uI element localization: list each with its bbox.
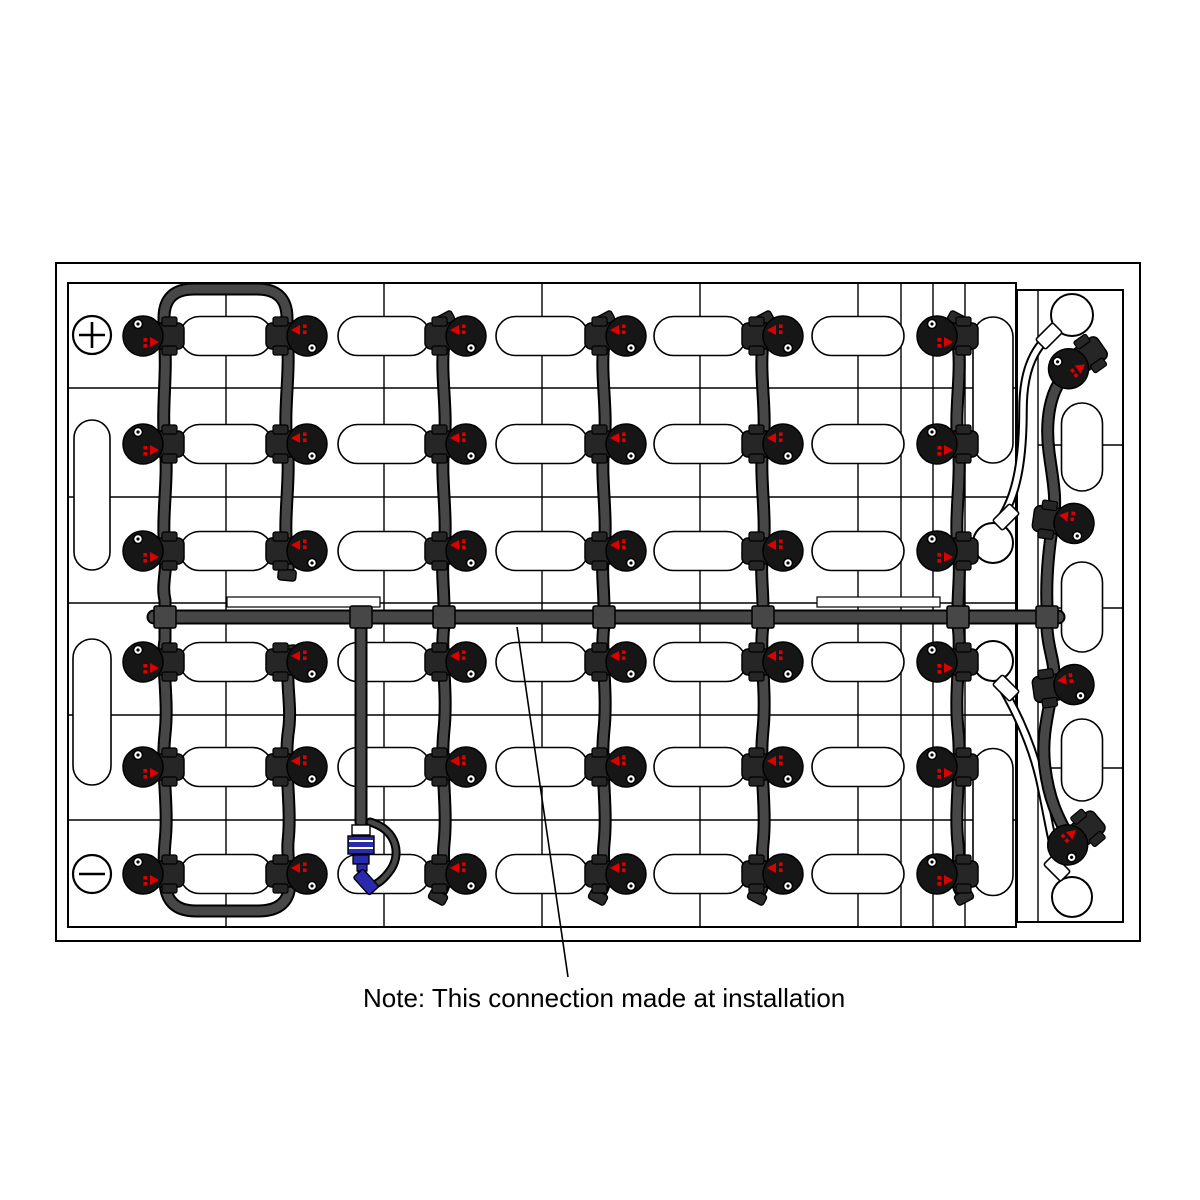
valve-flow-mark xyxy=(937,338,941,342)
valve-flow-mark xyxy=(143,882,147,886)
valve-flow-mark xyxy=(462,862,466,866)
valve-clip xyxy=(956,748,971,757)
watering-valve xyxy=(123,854,184,894)
valve-clip xyxy=(273,884,288,893)
valve-flow-mark xyxy=(937,882,941,886)
watering-valve xyxy=(425,854,486,894)
valve-indicator-pin xyxy=(136,648,139,651)
valve-clip xyxy=(432,454,447,463)
cell-oval xyxy=(654,425,746,464)
valve-flow-mark xyxy=(303,432,307,436)
valve-clip xyxy=(162,672,177,681)
watering-valve xyxy=(266,642,327,682)
valve-body xyxy=(763,424,803,464)
valve-body xyxy=(446,854,486,894)
valve-body xyxy=(606,747,646,787)
watering-valve xyxy=(266,854,327,894)
valve-clip xyxy=(592,425,607,434)
valve-clip xyxy=(592,561,607,570)
valve-indicator-pin xyxy=(310,672,313,675)
cell-oval xyxy=(812,855,904,894)
watering-valve xyxy=(425,531,486,571)
valve-flow-mark xyxy=(462,545,466,549)
watering-valve xyxy=(123,642,184,682)
valve-indicator-pin xyxy=(469,777,472,780)
vent-circle xyxy=(973,523,1013,563)
valve-flow-mark xyxy=(779,545,783,549)
valve-clip xyxy=(592,884,607,893)
watering-valve xyxy=(266,316,327,356)
valve-clip xyxy=(1038,668,1054,679)
valve-clip xyxy=(1038,529,1054,540)
cell-oval-vertical xyxy=(1062,562,1103,652)
tube-tee xyxy=(1036,606,1058,628)
cell-oval-vertical xyxy=(1062,403,1103,491)
valve-body xyxy=(763,316,803,356)
valve-clip xyxy=(432,425,447,434)
valve-body xyxy=(446,531,486,571)
valve-clip xyxy=(432,672,447,681)
valve-flow-mark xyxy=(303,539,307,543)
valve-body xyxy=(917,642,957,682)
valve-clip xyxy=(592,748,607,757)
valve-flow-mark xyxy=(779,539,783,543)
valve-indicator-pin xyxy=(786,346,789,349)
valve-flow-mark xyxy=(303,650,307,654)
valve-body xyxy=(763,747,803,787)
cell-oval xyxy=(338,532,430,571)
watering-valve xyxy=(425,642,486,682)
valve-clip xyxy=(749,454,764,463)
cell-oval xyxy=(496,317,588,356)
valve-clip xyxy=(162,425,177,434)
tube-tee xyxy=(752,606,774,628)
cell-oval xyxy=(812,748,904,787)
watering-valve xyxy=(585,642,646,682)
valve-clip xyxy=(273,454,288,463)
valve-clip xyxy=(749,748,764,757)
valve-flow-mark xyxy=(462,650,466,654)
valve-body xyxy=(287,424,327,464)
valve-clip xyxy=(956,672,971,681)
valve-indicator-pin xyxy=(930,753,933,756)
valve-indicator-pin xyxy=(136,322,139,325)
cell-oval-vertical xyxy=(1062,719,1103,801)
valve-clip xyxy=(162,643,177,652)
valve-body xyxy=(123,747,163,787)
cell-oval xyxy=(496,532,588,571)
tube-tee xyxy=(350,606,372,628)
valve-indicator-pin xyxy=(629,884,632,887)
watering-valve xyxy=(742,642,803,682)
valve-clip xyxy=(592,643,607,652)
valve-flow-mark xyxy=(937,664,941,668)
valve-flow-mark xyxy=(779,656,783,660)
valve-flow-mark xyxy=(779,324,783,328)
note-text: Note: This connection made at installati… xyxy=(363,983,845,1013)
valve-flow-mark xyxy=(303,330,307,334)
valve-flow-mark xyxy=(303,438,307,442)
valve-clip xyxy=(432,532,447,541)
valve-clip xyxy=(273,425,288,434)
valve-indicator-pin xyxy=(310,346,313,349)
valve-clip xyxy=(956,884,971,893)
valve-clip xyxy=(432,777,447,786)
valve-body xyxy=(446,316,486,356)
valve-clip xyxy=(1042,697,1058,708)
valve-flow-mark xyxy=(462,868,466,872)
valve-clip xyxy=(749,855,764,864)
valve-indicator-pin xyxy=(310,454,313,457)
valve-clip xyxy=(956,317,971,326)
valve-flow-mark xyxy=(462,539,466,543)
watering-valve xyxy=(585,531,646,571)
valve-flow-mark xyxy=(462,438,466,442)
tube-tee xyxy=(947,606,969,628)
valve-indicator-pin xyxy=(310,884,313,887)
valve-flow-mark xyxy=(937,559,941,563)
watering-valve xyxy=(585,747,646,787)
valve-body xyxy=(763,642,803,682)
cell-oval xyxy=(496,748,588,787)
valve-body xyxy=(917,747,957,787)
valve-clip xyxy=(592,317,607,326)
valve-body xyxy=(123,316,163,356)
cell-oval xyxy=(180,532,272,571)
valve-clip xyxy=(1042,500,1058,511)
valve-body xyxy=(287,642,327,682)
valve-body xyxy=(446,642,486,682)
valve-flow-mark xyxy=(143,876,147,880)
watering-valve xyxy=(742,747,803,787)
cell-oval xyxy=(180,855,272,894)
watering-valve xyxy=(266,531,327,571)
valve-flow-mark xyxy=(303,545,307,549)
valve-flow-mark xyxy=(143,344,147,348)
valve-flow-mark xyxy=(462,330,466,334)
watering-valve xyxy=(123,747,184,787)
cell-oval xyxy=(180,317,272,356)
valve-clip xyxy=(749,672,764,681)
valve-flow-mark xyxy=(779,438,783,442)
valve-flow-mark xyxy=(622,545,626,549)
connector-band xyxy=(352,825,370,835)
cell-oval xyxy=(654,748,746,787)
valve-body xyxy=(606,424,646,464)
valve-body xyxy=(123,642,163,682)
valve-clip xyxy=(749,317,764,326)
cell-oval xyxy=(496,643,588,682)
valve-clip xyxy=(749,561,764,570)
valve-flow-mark xyxy=(1069,679,1073,683)
valve-flow-mark xyxy=(622,656,626,660)
valve-flow-mark xyxy=(937,452,941,456)
valve-clip xyxy=(432,561,447,570)
watering-valve xyxy=(425,747,486,787)
valve-indicator-pin xyxy=(786,672,789,675)
cell-oval xyxy=(338,643,430,682)
valve-clip xyxy=(273,672,288,681)
valve-flow-mark xyxy=(779,862,783,866)
tube-tee xyxy=(154,606,176,628)
valve-flow-mark xyxy=(779,761,783,765)
valve-flow-mark xyxy=(143,446,147,450)
valve-clip xyxy=(162,317,177,326)
valve-clip xyxy=(592,532,607,541)
watering-valve xyxy=(742,531,803,571)
valve-indicator-pin xyxy=(469,672,472,675)
positive-terminal xyxy=(73,316,111,354)
valve-flow-mark xyxy=(622,761,626,765)
watering-valve xyxy=(917,531,978,571)
cell-oval xyxy=(180,643,272,682)
valve-body xyxy=(287,531,327,571)
valve-indicator-pin xyxy=(629,561,632,564)
valve-indicator-pin xyxy=(469,454,472,457)
watering-valve xyxy=(917,316,978,356)
cell-oval-vertical xyxy=(973,749,1013,896)
battery-watering-diagram: Note: This connection made at installati… xyxy=(0,0,1200,1200)
watering-valve xyxy=(123,316,184,356)
valve-clip xyxy=(162,884,177,893)
valve-flow-mark xyxy=(937,446,941,450)
watering-valve xyxy=(425,316,486,356)
valve-body xyxy=(606,531,646,571)
valve-clip xyxy=(273,346,288,355)
valve-body xyxy=(606,642,646,682)
valve-flow-mark xyxy=(622,330,626,334)
valve-indicator-pin xyxy=(786,561,789,564)
tube-tee xyxy=(433,606,455,628)
tube-end-cap xyxy=(278,569,297,582)
valve-flow-mark xyxy=(143,452,147,456)
watering-valve xyxy=(585,316,646,356)
valve-flow-mark xyxy=(622,432,626,436)
cell-oval xyxy=(812,532,904,571)
valve-indicator-pin xyxy=(136,430,139,433)
valve-clip xyxy=(592,855,607,864)
valve-body xyxy=(606,854,646,894)
valve-flow-mark xyxy=(937,775,941,779)
valve-flow-mark xyxy=(622,539,626,543)
valve-clip xyxy=(162,748,177,757)
watering-valve xyxy=(585,854,646,894)
valve-flow-mark xyxy=(462,761,466,765)
valve-indicator-pin xyxy=(629,346,632,349)
valve-indicator-pin xyxy=(469,884,472,887)
valve-clip xyxy=(956,454,971,463)
valve-clip xyxy=(956,855,971,864)
valve-clip xyxy=(273,748,288,757)
valve-body xyxy=(123,531,163,571)
watering-valve xyxy=(585,424,646,464)
valve-indicator-pin xyxy=(629,454,632,457)
valve-clip xyxy=(749,884,764,893)
connector-body xyxy=(348,836,374,854)
valve-flow-mark xyxy=(622,755,626,759)
valve-clip xyxy=(432,855,447,864)
cell-oval xyxy=(180,425,272,464)
cell-oval xyxy=(654,643,746,682)
valve-clip xyxy=(162,855,177,864)
watering-valve xyxy=(266,424,327,464)
watering-valve xyxy=(266,747,327,787)
valve-clip xyxy=(432,643,447,652)
cell-oval xyxy=(654,317,746,356)
cell-oval xyxy=(496,855,588,894)
valve-clip xyxy=(592,454,607,463)
valve-clip xyxy=(162,454,177,463)
diagram-canvas: Note: This connection made at installati… xyxy=(0,0,1200,1200)
valve-clip xyxy=(749,425,764,434)
valve-body xyxy=(123,854,163,894)
valve-flow-mark xyxy=(1068,673,1072,677)
valve-flow-mark xyxy=(303,862,307,866)
valve-flow-mark xyxy=(462,755,466,759)
valve-clip xyxy=(749,346,764,355)
watering-valve xyxy=(742,854,803,894)
valve-flow-mark xyxy=(303,324,307,328)
valve-flow-mark xyxy=(143,338,147,342)
valve-indicator-pin xyxy=(786,777,789,780)
valve-flow-mark xyxy=(303,656,307,660)
valve-flow-mark xyxy=(143,559,147,563)
valve-flow-mark xyxy=(1071,511,1075,515)
valve-flow-mark xyxy=(622,862,626,866)
valve-indicator-pin xyxy=(629,672,632,675)
valve-clip xyxy=(956,777,971,786)
vent-circle xyxy=(1052,877,1092,917)
valve-indicator-pin xyxy=(136,860,139,863)
valve-body xyxy=(917,531,957,571)
valve-flow-mark xyxy=(937,553,941,557)
valve-body xyxy=(763,531,803,571)
valve-clip xyxy=(162,532,177,541)
valve-flow-mark xyxy=(622,438,626,442)
valve-body xyxy=(917,854,957,894)
valve-flow-mark xyxy=(779,868,783,872)
valve-indicator-pin xyxy=(136,753,139,756)
valve-body xyxy=(917,424,957,464)
valve-clip xyxy=(273,643,288,652)
valve-flow-mark xyxy=(462,432,466,436)
valve-clip xyxy=(749,777,764,786)
cell-oval xyxy=(812,643,904,682)
valve-body xyxy=(287,854,327,894)
valve-flow-mark xyxy=(462,324,466,328)
valve-clip xyxy=(273,317,288,326)
valve-clip xyxy=(162,561,177,570)
valve-indicator-pin xyxy=(469,346,472,349)
valve-clip xyxy=(749,532,764,541)
valve-indicator-pin xyxy=(930,430,933,433)
tube-tee xyxy=(593,606,615,628)
vent-circle xyxy=(973,641,1013,681)
valve-clip xyxy=(273,561,288,570)
valve-body xyxy=(123,424,163,464)
watering-valve xyxy=(742,424,803,464)
cell-oval-vertical xyxy=(74,420,110,570)
valve-flow-mark xyxy=(143,664,147,668)
valve-flow-mark xyxy=(143,670,147,674)
watering-valve xyxy=(742,316,803,356)
valve-flow-mark xyxy=(303,868,307,872)
valve-indicator-pin xyxy=(310,777,313,780)
watering-valve xyxy=(917,424,978,464)
watering-valve xyxy=(425,424,486,464)
watering-valve xyxy=(917,642,978,682)
valve-clip xyxy=(432,346,447,355)
valve-flow-mark xyxy=(1070,517,1074,521)
valve-flow-mark xyxy=(143,775,147,779)
valve-clip xyxy=(749,643,764,652)
valve-indicator-pin xyxy=(310,561,313,564)
valve-flow-mark xyxy=(143,553,147,557)
cell-oval xyxy=(654,532,746,571)
valve-flow-mark xyxy=(462,656,466,660)
valve-body xyxy=(446,424,486,464)
valve-flow-mark xyxy=(937,769,941,773)
valve-indicator-pin xyxy=(136,537,139,540)
cell-oval xyxy=(338,425,430,464)
valve-indicator-pin xyxy=(469,561,472,564)
valve-clip xyxy=(273,855,288,864)
valve-indicator-pin xyxy=(930,860,933,863)
valve-clip xyxy=(432,748,447,757)
valve-body xyxy=(446,747,486,787)
valve-flow-mark xyxy=(937,876,941,880)
watering-valve xyxy=(917,747,978,787)
negative-terminal xyxy=(73,855,111,893)
valve-clip xyxy=(956,561,971,570)
valve-clip xyxy=(432,884,447,893)
valve-clip xyxy=(956,425,971,434)
valve-clip xyxy=(956,643,971,652)
watering-valve xyxy=(123,424,184,464)
valve-flow-mark xyxy=(303,761,307,765)
cell-oval xyxy=(812,317,904,356)
watering-valve xyxy=(917,854,978,894)
valve-flow-mark xyxy=(779,330,783,334)
valve-clip xyxy=(592,346,607,355)
valve-indicator-pin xyxy=(930,648,933,651)
cell-oval xyxy=(812,425,904,464)
valve-body xyxy=(287,316,327,356)
valve-clip xyxy=(592,672,607,681)
valve-flow-mark xyxy=(622,650,626,654)
cell-oval xyxy=(338,317,430,356)
valve-clip xyxy=(273,532,288,541)
valve-body xyxy=(917,316,957,356)
valve-flow-mark xyxy=(622,324,626,328)
valve-clip xyxy=(592,777,607,786)
valve-flow-mark xyxy=(937,344,941,348)
cell-oval xyxy=(338,748,430,787)
valve-indicator-pin xyxy=(930,322,933,325)
cell-oval xyxy=(654,855,746,894)
valve-flow-mark xyxy=(779,755,783,759)
valve-flow-mark xyxy=(937,670,941,674)
watering-valve xyxy=(123,531,184,571)
valve-indicator-pin xyxy=(786,454,789,457)
valve-indicator-pin xyxy=(629,777,632,780)
valve-body xyxy=(763,854,803,894)
valve-clip xyxy=(162,346,177,355)
valve-clip xyxy=(162,777,177,786)
valve-indicator-pin xyxy=(786,884,789,887)
valve-clip xyxy=(956,532,971,541)
cell-oval-vertical xyxy=(73,639,111,785)
